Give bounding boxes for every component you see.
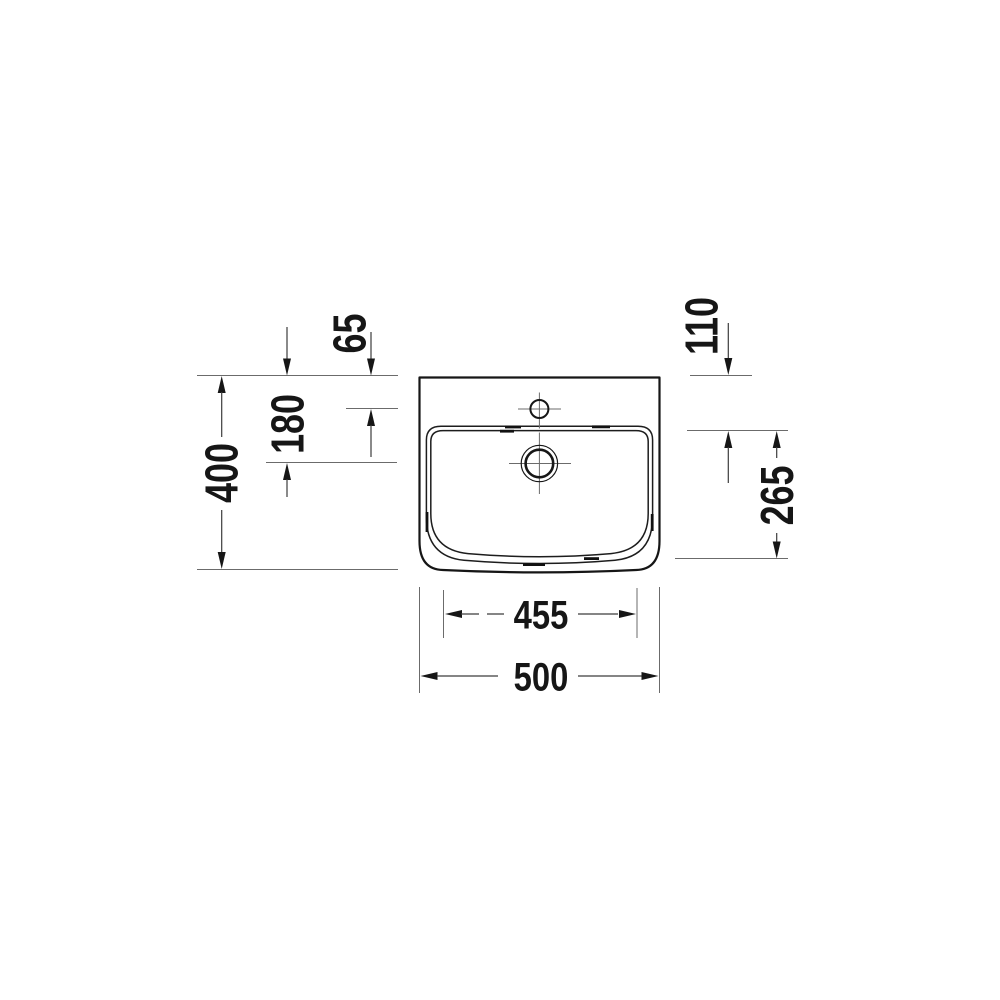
arrowhead-up <box>283 463 291 480</box>
arrowhead-left <box>445 610 462 618</box>
washbasin-body <box>420 378 660 573</box>
arrowhead-up <box>218 376 226 393</box>
tap-hole <box>518 393 561 429</box>
arrowhead-down <box>367 359 375 376</box>
dim-label-bowl-width: 455 <box>514 593 569 638</box>
arrowhead-up <box>724 431 732 448</box>
dim-label-tap-offset: 65 <box>324 314 375 354</box>
dim-label-rim-offset: 110 <box>676 297 727 355</box>
dimension-overall-depth: 400 <box>196 376 247 569</box>
arrowhead-right <box>642 672 659 680</box>
drain <box>509 433 571 495</box>
arrowhead-up <box>367 409 375 426</box>
arrowhead-down <box>724 358 732 375</box>
dim-label-drain-offset: 180 <box>262 394 313 454</box>
arrowhead-down <box>218 552 226 569</box>
dimension-overall-width: 500 <box>421 655 659 700</box>
drawing-canvas: 400 180 65 110 265 455 <box>0 0 1000 1000</box>
dimension-bowl-depth: 265 <box>752 431 803 559</box>
dimension-tap-offset: 65 <box>324 314 375 457</box>
dim-label-overall-width: 500 <box>514 655 569 700</box>
dimension-bowl-width: 455 <box>445 593 636 638</box>
dim-label-bowl-depth: 265 <box>752 466 803 526</box>
arrowhead-right <box>619 610 636 618</box>
dimension-rim-offset: 110 <box>676 297 732 483</box>
arrowhead-up <box>773 431 781 448</box>
arrowhead-down <box>283 359 291 376</box>
dim-label-overall-depth: 400 <box>196 443 247 503</box>
washbasin-dimension-drawing: 400 180 65 110 265 455 <box>0 0 1000 1000</box>
arrowhead-left <box>421 672 438 680</box>
arrowhead-down <box>773 542 781 559</box>
dimension-drain-offset: 180 <box>262 327 313 497</box>
